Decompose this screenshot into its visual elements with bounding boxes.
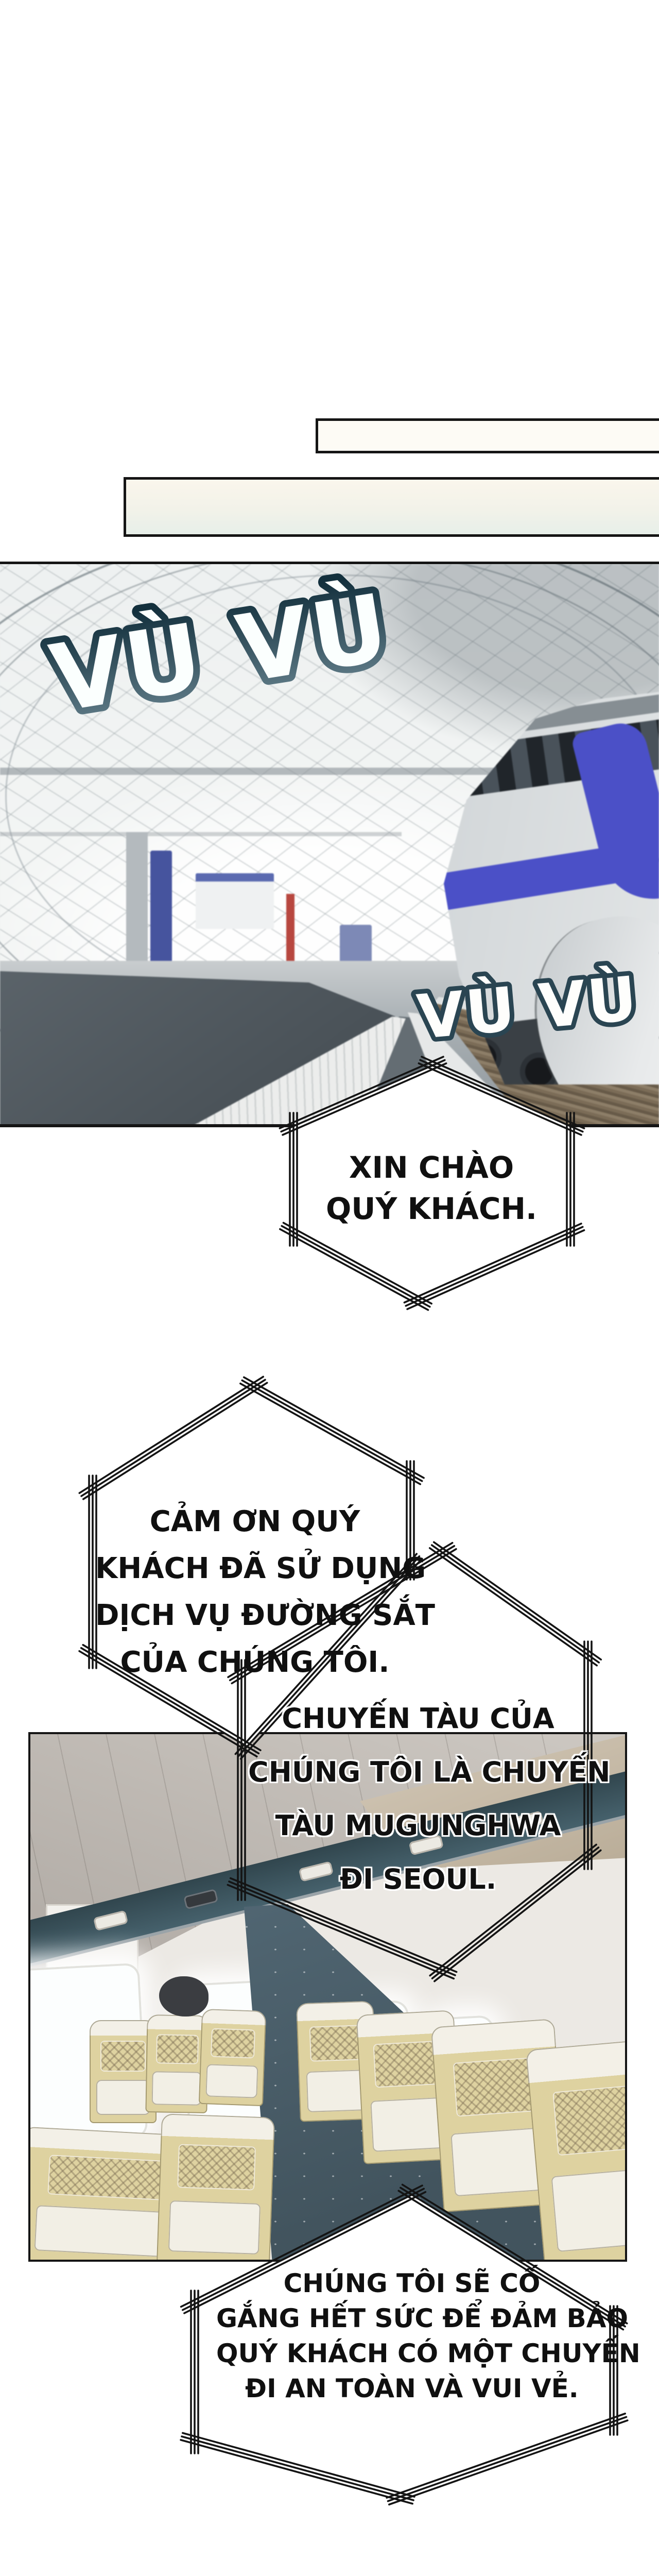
caption-bar-wide <box>124 477 659 537</box>
bubble-text-line: GẮNG HẾT SỨC ĐỂ ĐẢM BẢO <box>216 2301 608 2336</box>
panel-train-station: VÙ VÙ VÙ VÙ <box>0 562 659 1127</box>
bubble-text-line: CHÚNG TÔI LÀ CHUYẾN <box>248 1745 588 1799</box>
rack-speaker <box>183 1889 218 1910</box>
roof-girder <box>0 832 402 836</box>
bubble-text-line: CHUYẾN TÀU CỦA <box>248 1692 588 1745</box>
seat <box>199 2009 266 2106</box>
speech-bubble-greeting: XIN CHÀO QUÝ KHÁCH. <box>318 1147 545 1229</box>
billboard <box>196 873 274 929</box>
speech-bubble-route: CHUYẾN TÀU CỦA CHÚNG TÔI LÀ CHUYẾN TÀU M… <box>248 1692 588 1906</box>
sfx-vu-vu-small: VÙ VÙ <box>407 946 649 1075</box>
bubble-text-line: ĐI AN TOÀN VÀ VUI VẺ. <box>216 2371 608 2406</box>
bubble-text-line: TÀU MUGUNGHWA <box>248 1799 588 1853</box>
bubble-text-line: CHÚNG TÔI SẼ CỐ <box>216 2266 608 2301</box>
bubble-text-line: CẢM ƠN QUÝ <box>95 1498 414 1545</box>
seat <box>526 2038 627 2262</box>
speech-bubble-promise: CHÚNG TÔI SẼ CỐ GẮNG HẾT SỨC ĐỂ ĐẢM BẢO … <box>216 2266 608 2406</box>
bubble-text-line: ĐI SEOUL. <box>248 1853 588 1906</box>
bubble-text-line: KHÁCH ĐÃ SỬ DỤNG <box>95 1545 414 1592</box>
bubble-text-line: QUÝ KHÁCH CÓ MỘT CHUYẾN <box>216 2336 608 2371</box>
caption-bar-small <box>316 418 659 453</box>
bubble-text-line: QUÝ KHÁCH. <box>318 1188 545 1229</box>
speech-bubble-thanks: CẢM ƠN QUÝ KHÁCH ĐÃ SỬ DỤNG DỊCH VỤ ĐƯỜN… <box>95 1498 414 1686</box>
passenger-head <box>159 1976 209 2016</box>
bubble-text-line: XIN CHÀO <box>318 1147 545 1188</box>
comic-page: VÙ VÙ VÙ VÙ <box>0 0 659 2576</box>
bubble-text-line: DỊCH VỤ ĐƯỜNG SẮT <box>95 1592 414 1639</box>
bubble-text-line: CỦA CHÚNG TÔI. <box>95 1639 414 1686</box>
sfx-vu-vu-large: VÙ VÙ <box>31 562 412 760</box>
sfx-text: VÙ VÙ <box>414 963 641 1053</box>
sfx-text: VÙ VÙ <box>44 573 398 733</box>
rack-light <box>93 1910 128 1931</box>
seat <box>157 2113 275 2262</box>
